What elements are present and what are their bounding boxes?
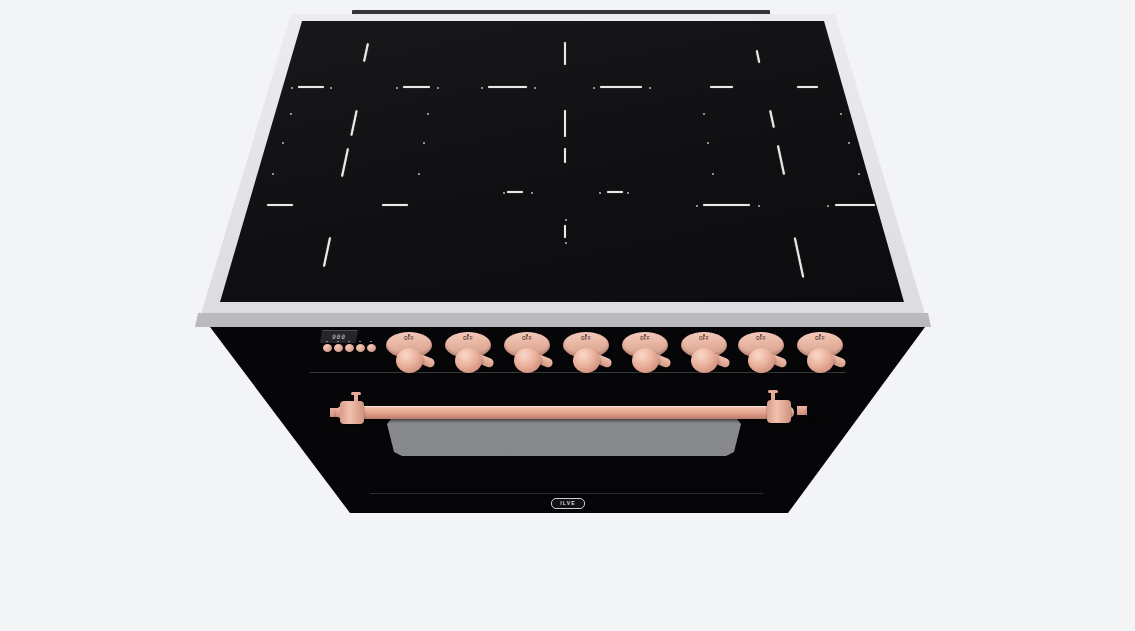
clock-button <box>345 344 354 352</box>
oven-door-bottom-seam <box>370 493 763 494</box>
zone-marking-dot <box>565 242 567 244</box>
oven-handle-right-ball <box>806 402 827 422</box>
zone-marking-dash <box>507 191 523 193</box>
brand-logo-badge: ILVE <box>551 498 585 509</box>
zone-marking-dot <box>712 173 714 175</box>
clock-button <box>323 344 332 352</box>
zone-marking-dot <box>534 87 536 89</box>
zone-marking-dot <box>531 192 533 194</box>
zone-marking-dash <box>403 86 430 88</box>
control-knob: OFF <box>440 330 496 380</box>
zone-marking-dash <box>564 42 566 65</box>
clock-button-tick <box>348 341 350 342</box>
clock-button-tick <box>337 341 339 342</box>
zone-marking-dot <box>290 113 292 115</box>
knob-grip <box>455 348 482 373</box>
zone-marking-dot <box>696 205 698 207</box>
zone-marking-dot <box>481 87 483 89</box>
knob-grip <box>396 348 423 373</box>
control-knob: OFF <box>676 330 732 380</box>
clock-button <box>367 344 376 352</box>
zone-marking-dash <box>488 86 527 88</box>
zone-marking-dash <box>267 204 293 206</box>
knob-grip <box>573 348 600 373</box>
zone-marking-dot <box>858 173 860 175</box>
zone-marking-dot <box>627 192 629 194</box>
zone-marking-dot <box>423 142 425 144</box>
oven-handle-bar <box>336 406 794 419</box>
control-knob: OFF <box>733 330 789 380</box>
zone-marking-dash <box>600 86 642 88</box>
zone-marking-dash <box>564 148 566 163</box>
zone-marking-dash <box>835 204 875 206</box>
knob-grip <box>807 348 834 373</box>
zone-marking-dash <box>703 204 750 206</box>
zone-marking-dash <box>710 86 733 88</box>
zone-marking-dot <box>291 87 293 89</box>
zone-marking-dot <box>827 205 829 207</box>
control-knob: OFF <box>792 330 848 380</box>
oven-handle-left-ball <box>314 404 335 424</box>
zone-marking-dot <box>758 205 760 207</box>
knob-grip <box>632 348 659 373</box>
zone-marking-dot <box>848 142 850 144</box>
zone-marking-dot <box>649 87 651 89</box>
knob-off-label: OFF <box>440 336 496 341</box>
clock-button <box>334 344 343 352</box>
knob-grip <box>691 348 718 373</box>
zone-marking-dash <box>298 86 324 88</box>
control-knob: OFF <box>617 330 673 380</box>
zone-marking-dot <box>503 192 505 194</box>
knob-grip <box>514 348 541 373</box>
zone-marking-dot <box>427 113 429 115</box>
clock-button-tick <box>326 341 328 342</box>
zone-marking-dot <box>330 87 332 89</box>
zone-marking-dot <box>282 142 284 144</box>
clock-button <box>356 344 365 352</box>
zone-marking-dash <box>382 204 408 206</box>
knob-off-label: OFF <box>733 336 789 341</box>
range-product-image: 900 OFFOFFOFFOFFOFFOFFOFFOFF ILVE <box>0 0 1135 631</box>
zone-marking-dot <box>418 173 420 175</box>
zone-marking-dot <box>437 87 439 89</box>
zone-marking-dash <box>797 86 818 88</box>
clock-button-tick <box>359 341 361 342</box>
zone-marking-dot <box>881 205 883 207</box>
oven-handle-right-bracket <box>767 400 791 423</box>
zone-marking-dot <box>593 87 595 89</box>
knob-off-label: OFF <box>792 336 848 341</box>
zone-marking-dash <box>607 191 623 193</box>
control-knob: OFF <box>499 330 555 380</box>
knob-grip <box>748 348 775 373</box>
knob-off-label: OFF <box>617 336 673 341</box>
zone-marking-dash <box>564 110 566 137</box>
zone-marking-dot <box>703 113 705 115</box>
control-knob: OFF <box>558 330 614 380</box>
oven-handle-left-bracket <box>340 401 364 424</box>
zone-marking-dot <box>599 192 601 194</box>
knob-off-label: OFF <box>381 336 437 341</box>
zone-marking-dot <box>565 219 567 221</box>
knob-off-label: OFF <box>676 336 732 341</box>
control-knob: OFF <box>381 330 437 380</box>
knob-off-label: OFF <box>499 336 555 341</box>
zone-marking-dot <box>840 113 842 115</box>
zone-marking-dot <box>272 173 274 175</box>
knob-off-label: OFF <box>558 336 614 341</box>
zone-marking-dash <box>564 225 566 238</box>
clock-button-tick <box>370 341 372 342</box>
zone-marking-dot <box>396 87 398 89</box>
zone-marking-dot <box>707 142 709 144</box>
